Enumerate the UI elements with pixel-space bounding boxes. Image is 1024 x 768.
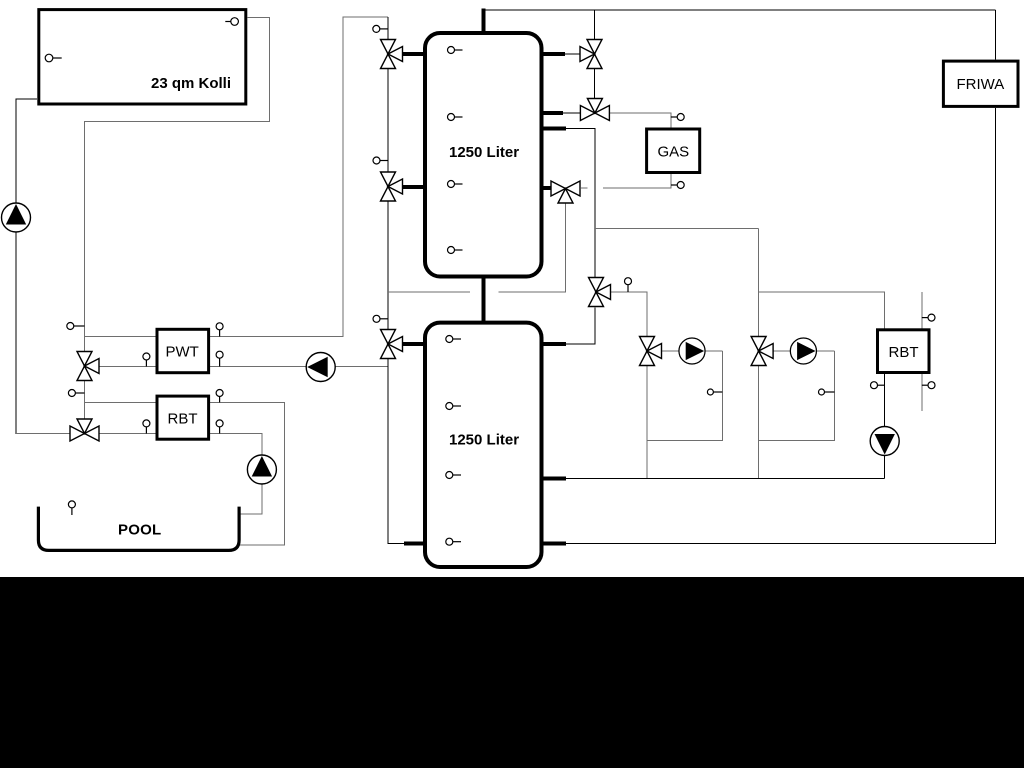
svg-text:RBT: RBT [168,411,198,428]
svg-text:PWT: PWT [166,344,199,361]
svg-text:1250 Liter: 1250 Liter [449,144,519,161]
svg-text:1250 Liter: 1250 Liter [449,432,519,449]
svg-text:GAS: GAS [658,144,690,161]
svg-text:RBT: RBT [889,344,919,361]
svg-text:FRIWA: FRIWA [957,76,1005,93]
svg-text:23 qm Kolli: 23 qm Kolli [151,75,231,92]
svg-text:POOL: POOL [118,522,161,539]
